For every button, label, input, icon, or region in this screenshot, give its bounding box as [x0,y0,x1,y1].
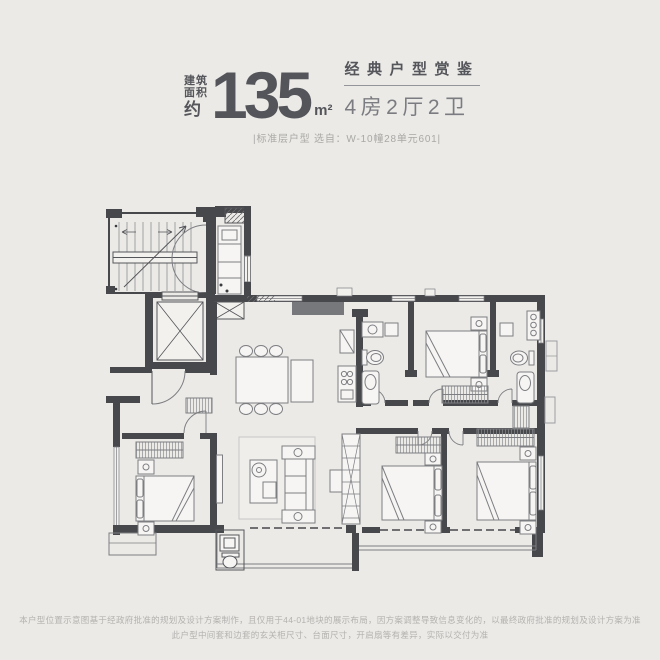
foyer-cabinet [186,398,212,413]
sofa [282,446,315,523]
living-room [217,434,361,524]
bedroom-4 [477,429,536,534]
nightstand [425,521,441,533]
toilet-icon [223,556,237,568]
elevator [145,292,215,369]
kitchen-column [338,330,356,402]
nightstand [425,453,441,465]
bed [382,466,442,520]
sink-icon [220,535,239,551]
dining-table [236,357,288,403]
hall-closet [513,406,529,428]
bathroom2-door [498,389,512,403]
disclaimer-line1: 本户型位置示意图基于经政府批准的规划及设计方案制作，且仅用于44-01地块的展示… [0,613,660,628]
bed [426,331,487,377]
bay-window [109,533,156,555]
bedroom-1 [136,442,194,535]
entry-foyer [110,367,215,413]
vanity-icon [362,371,379,404]
dining-room [236,346,313,415]
kitchen [215,206,251,302]
nightstand [520,447,536,460]
storage-cabinet [330,434,360,524]
bedroom4-door [449,431,463,445]
washer-icon [362,322,383,337]
nightstand [471,317,487,330]
bathroom-2 [500,311,540,428]
balcony-railing [359,533,536,550]
bed [136,476,194,521]
kitchen-island [291,360,313,402]
toilet-icon [511,351,535,365]
toilet-icon [362,350,384,365]
ac-platform [545,397,555,423]
nightstand [138,522,154,535]
bedroom-3 [382,437,442,533]
duct-hatch [225,208,247,223]
floorplan [0,0,660,660]
tv-icon [217,455,223,503]
disclaimer: 本户型位置示意图基于经政府批准的规划及设计方案制作，且仅用于44-01地块的展示… [0,613,660,643]
coffee-table [250,460,277,503]
nightstand [138,460,154,474]
vanity-icon [517,372,534,403]
bedroom2-door [429,389,443,403]
bedroom1-door [184,411,206,433]
entry-door-arc [152,371,185,404]
nightstand [520,521,536,534]
bed [477,462,536,520]
living-balcony [216,528,352,570]
stairwell [106,207,226,294]
bedroom-2 [426,317,488,403]
disclaimer-line2: 此户型中间套和边套的玄关柜尺寸、台面尺寸，开启扇等有差异，实际以交付为准 [0,628,660,643]
